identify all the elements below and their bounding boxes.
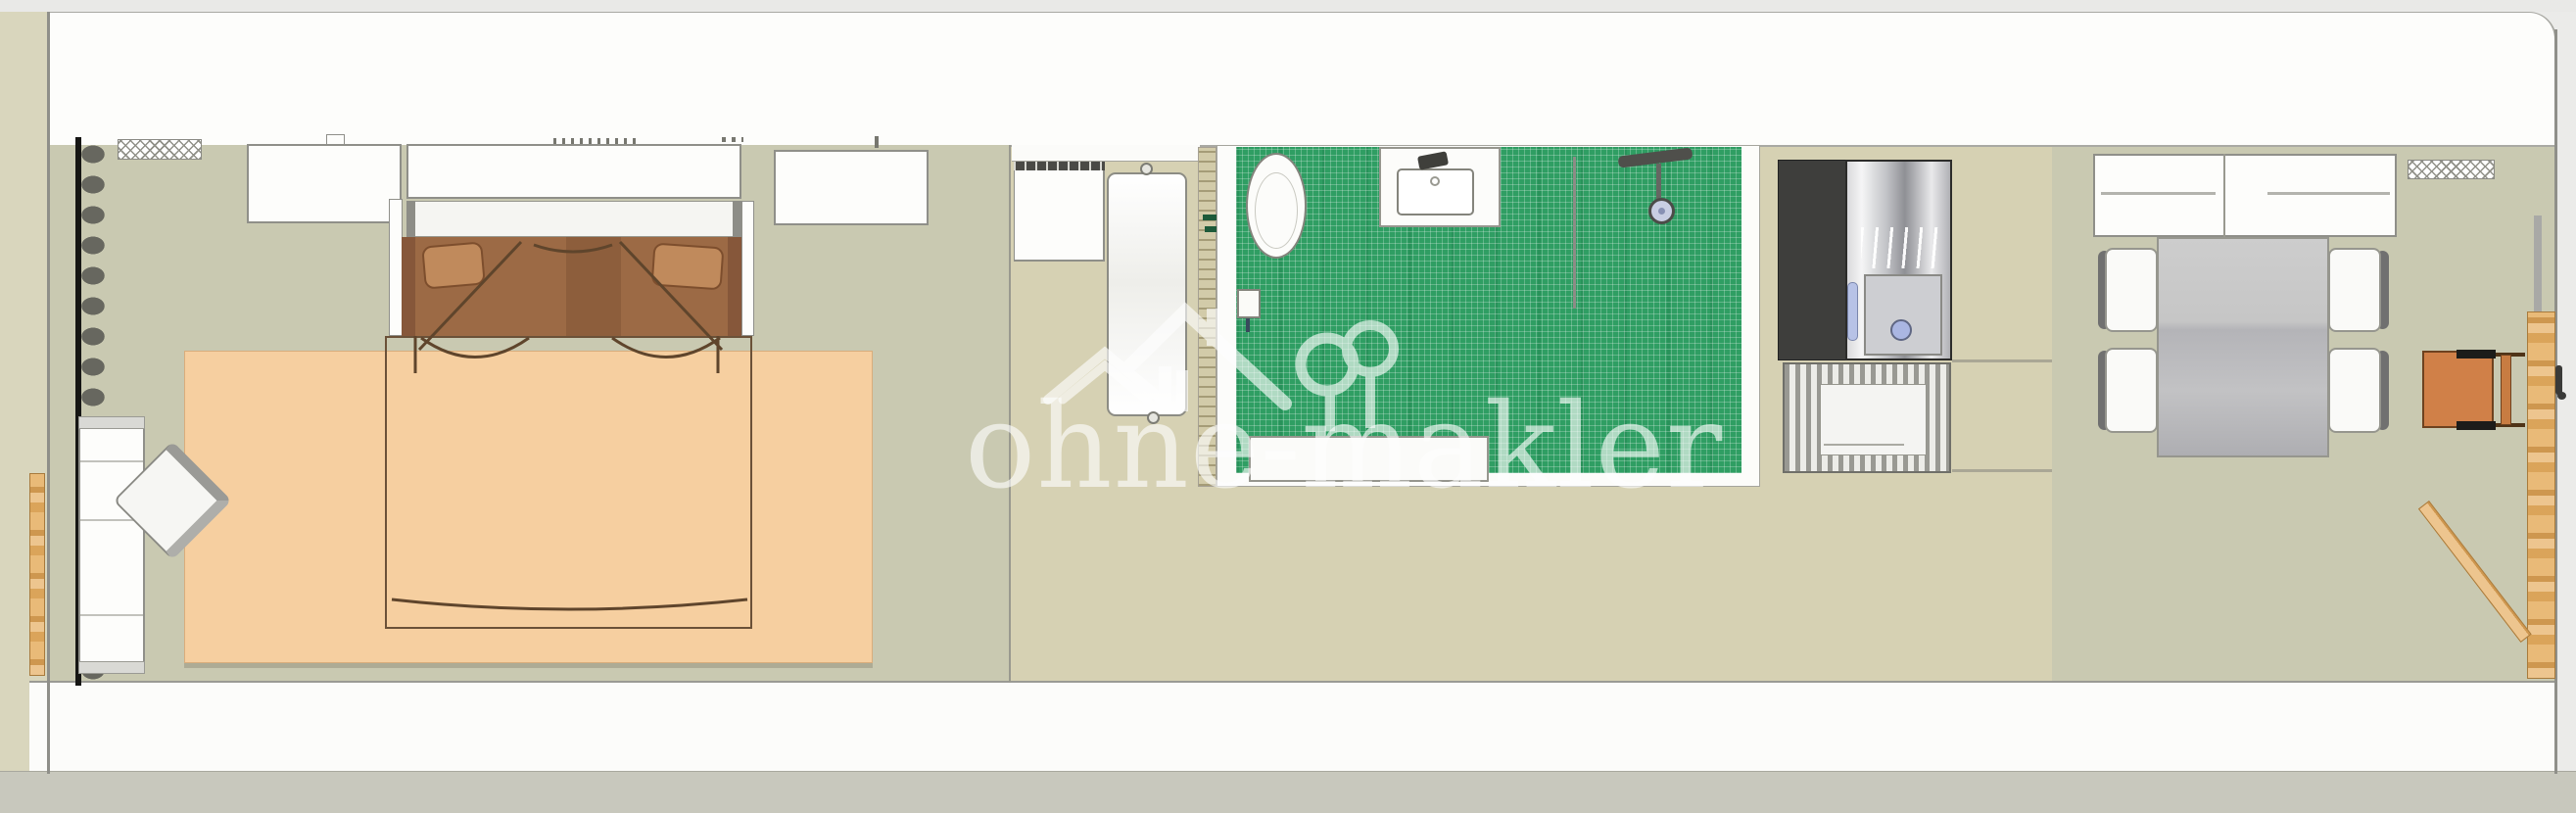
watermark-text: ohne-makler [965,389,1723,506]
floor-plan: ohne-makler [0,0,2576,813]
